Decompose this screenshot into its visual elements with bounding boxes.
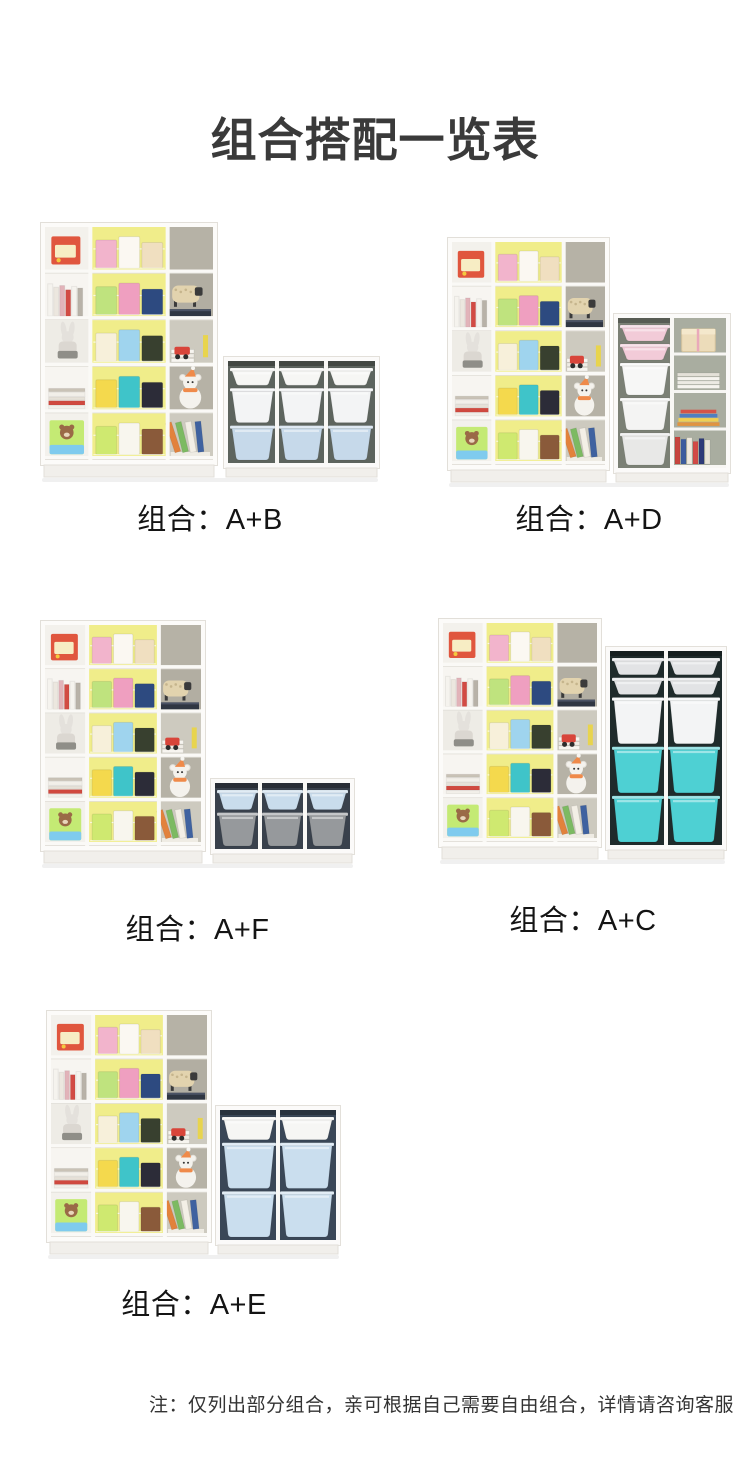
combo-caption-a-c: 组合：A+C bbox=[438, 906, 728, 938]
combo-illustration-a-f bbox=[40, 620, 355, 870]
combo-caption-a-f: 组合：A+F bbox=[40, 915, 355, 947]
product-detail-page: 组合搭配一览表 组合：A+B 组合：A+D 组合：A+F 组合：A+C 组合：A… bbox=[0, 0, 750, 1458]
combo-illustration-a-e bbox=[46, 1010, 342, 1261]
combo-figure-a-b: 组合：A+B bbox=[40, 222, 380, 537]
combo-caption-a-e: 组合：A+E bbox=[46, 1290, 342, 1322]
combo-illustration-a-b bbox=[40, 222, 380, 484]
combo-caption-a-b: 组合：A+B bbox=[40, 505, 380, 537]
footnote: 注：仅列出部分组合，亲可根据自己需要自由组合，详情请咨询客服 bbox=[149, 1390, 734, 1417]
combo-caption-a-d: 组合：A+D bbox=[447, 505, 731, 537]
combo-illustration-a-c bbox=[438, 618, 728, 866]
combo-figure-a-e: 组合：A+E bbox=[46, 1010, 342, 1322]
combo-figure-a-f: 组合：A+F bbox=[40, 620, 355, 947]
page-title: 组合搭配一览表 bbox=[0, 115, 750, 166]
combo-figure-a-c: 组合：A+C bbox=[438, 618, 728, 938]
combo-figure-a-d: 组合：A+D bbox=[447, 237, 731, 537]
combo-illustration-a-d bbox=[447, 237, 731, 489]
